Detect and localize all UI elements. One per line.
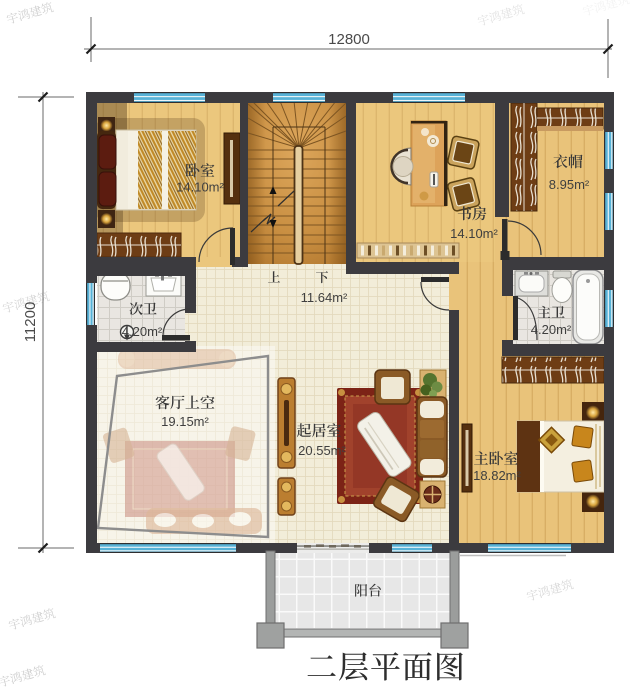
svg-text:4.20m²: 4.20m²	[122, 324, 163, 339]
svg-text:11.64m²: 11.64m²	[301, 290, 348, 305]
svg-text:11200: 11200	[22, 302, 39, 343]
svg-text:8.95m²: 8.95m²	[549, 177, 590, 192]
svg-text:19.15m²: 19.15m²	[161, 414, 209, 429]
svg-text:14.10m²: 14.10m²	[450, 226, 498, 241]
svg-text:4.20m²: 4.20m²	[531, 322, 572, 337]
svg-text:18.82m²: 18.82m²	[473, 468, 521, 483]
svg-text:20.55m²: 20.55m²	[298, 443, 346, 458]
svg-text:14.10m²: 14.10m²	[176, 180, 224, 195]
svg-text:12800: 12800	[328, 31, 370, 48]
